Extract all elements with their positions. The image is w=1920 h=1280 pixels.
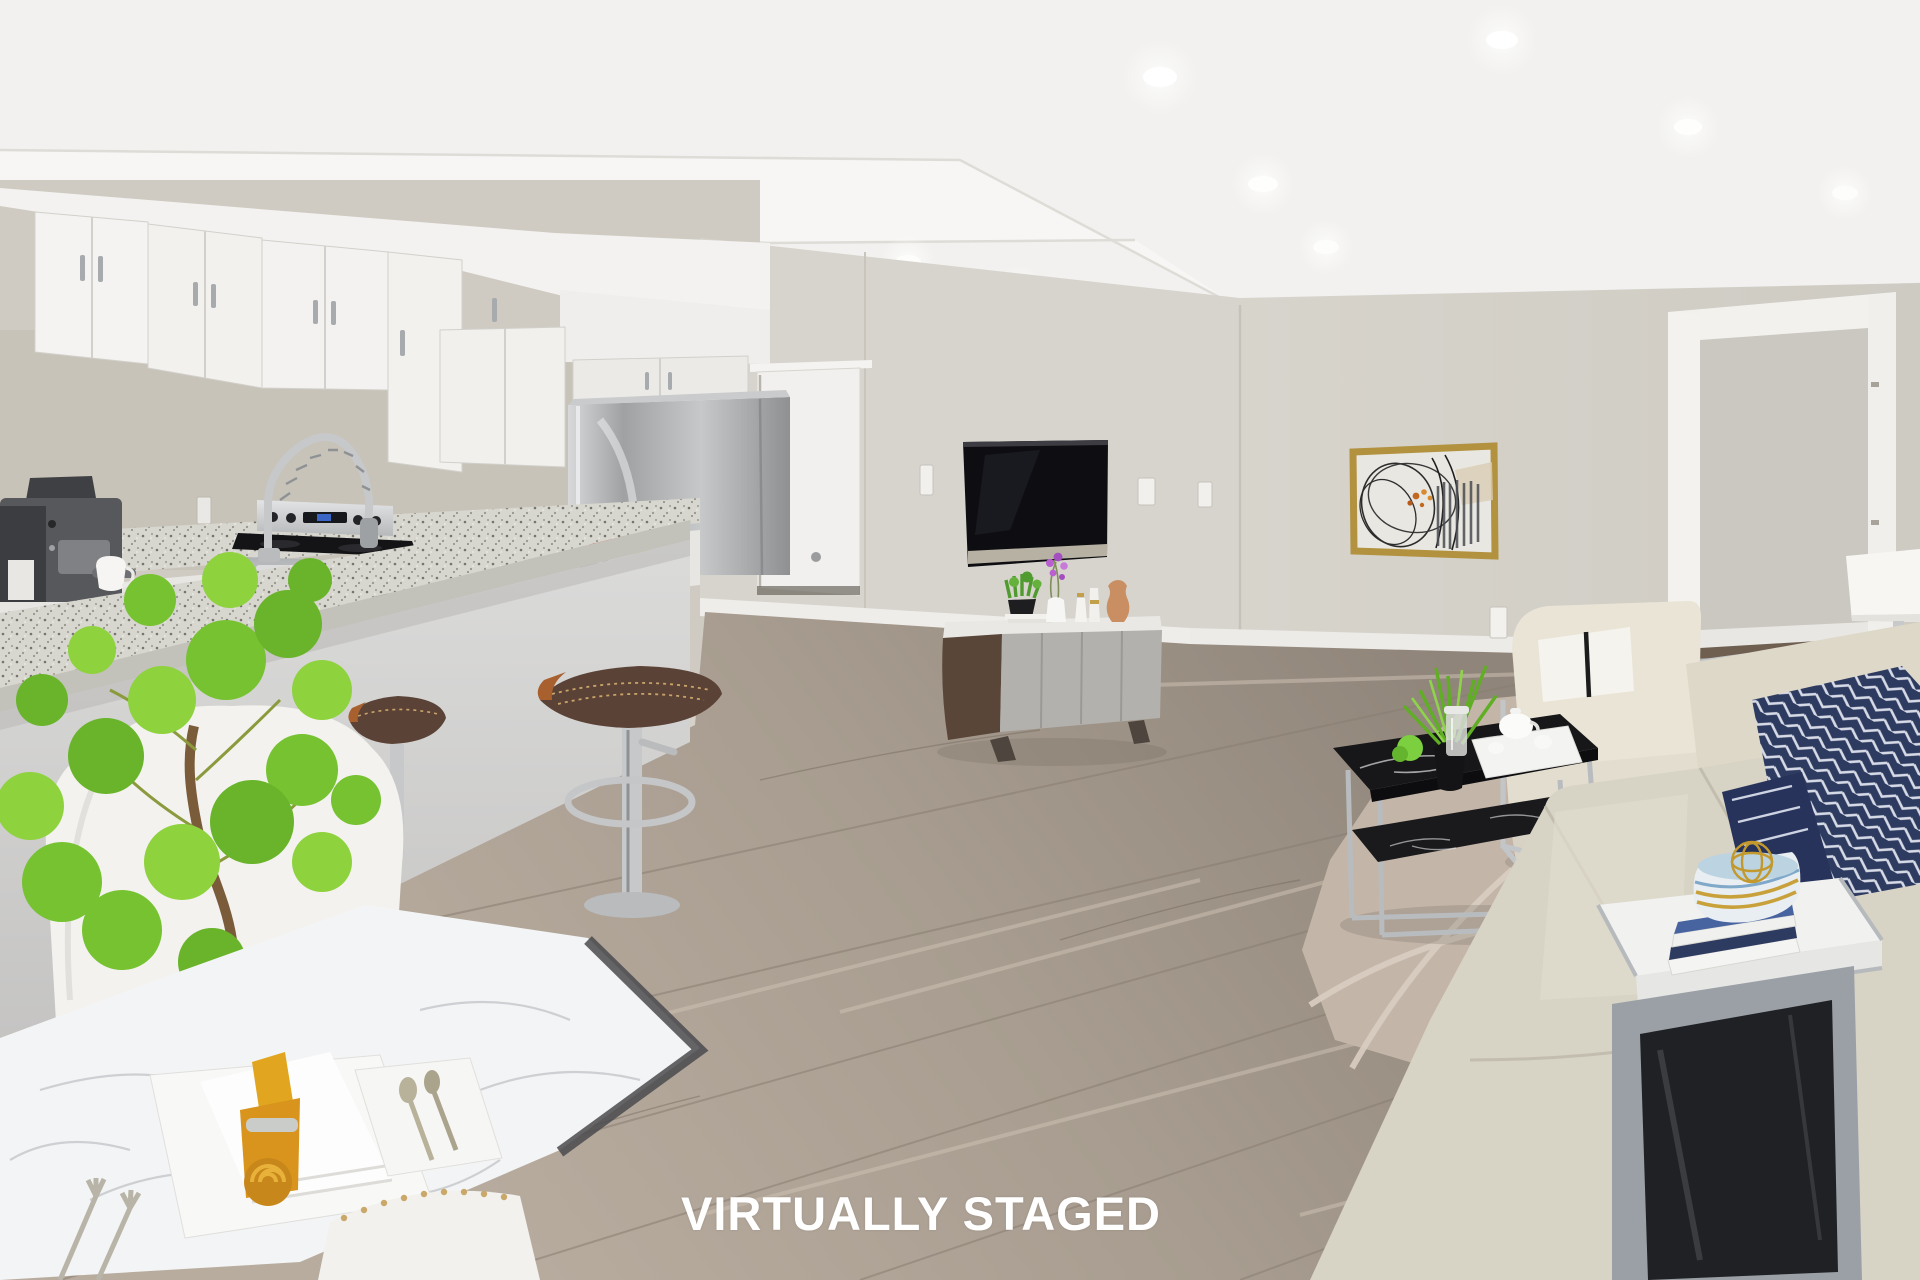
outlet xyxy=(197,497,211,524)
light-switch-3 xyxy=(1198,482,1212,507)
glass-jar xyxy=(1444,706,1469,756)
light-switch-1 xyxy=(920,465,933,495)
terracotta-vase xyxy=(1107,580,1130,622)
wall-mounted-tv xyxy=(963,440,1108,567)
stool-base xyxy=(584,892,680,918)
side-table xyxy=(1598,842,1882,1280)
console-walnut-end xyxy=(942,634,1002,740)
staged-apartment-photo: VIRTUALLY STAGED xyxy=(0,0,1920,1280)
virtually-staged-watermark: VIRTUALLY STAGED xyxy=(681,1186,1161,1241)
napkin-ring xyxy=(246,1118,298,1132)
doorway-interior-wall xyxy=(1700,328,1868,652)
lamp-shade xyxy=(1846,549,1920,622)
door-gap-shadow xyxy=(757,586,860,595)
light-switch-2 xyxy=(1138,478,1155,505)
art-hatch xyxy=(1438,480,1478,549)
scene-illustration xyxy=(0,0,1920,1280)
abstract-wall-art xyxy=(1349,446,1495,556)
door-handle xyxy=(811,552,821,562)
light-switch-4 xyxy=(1490,607,1507,638)
armchair-pillow xyxy=(1538,627,1634,702)
